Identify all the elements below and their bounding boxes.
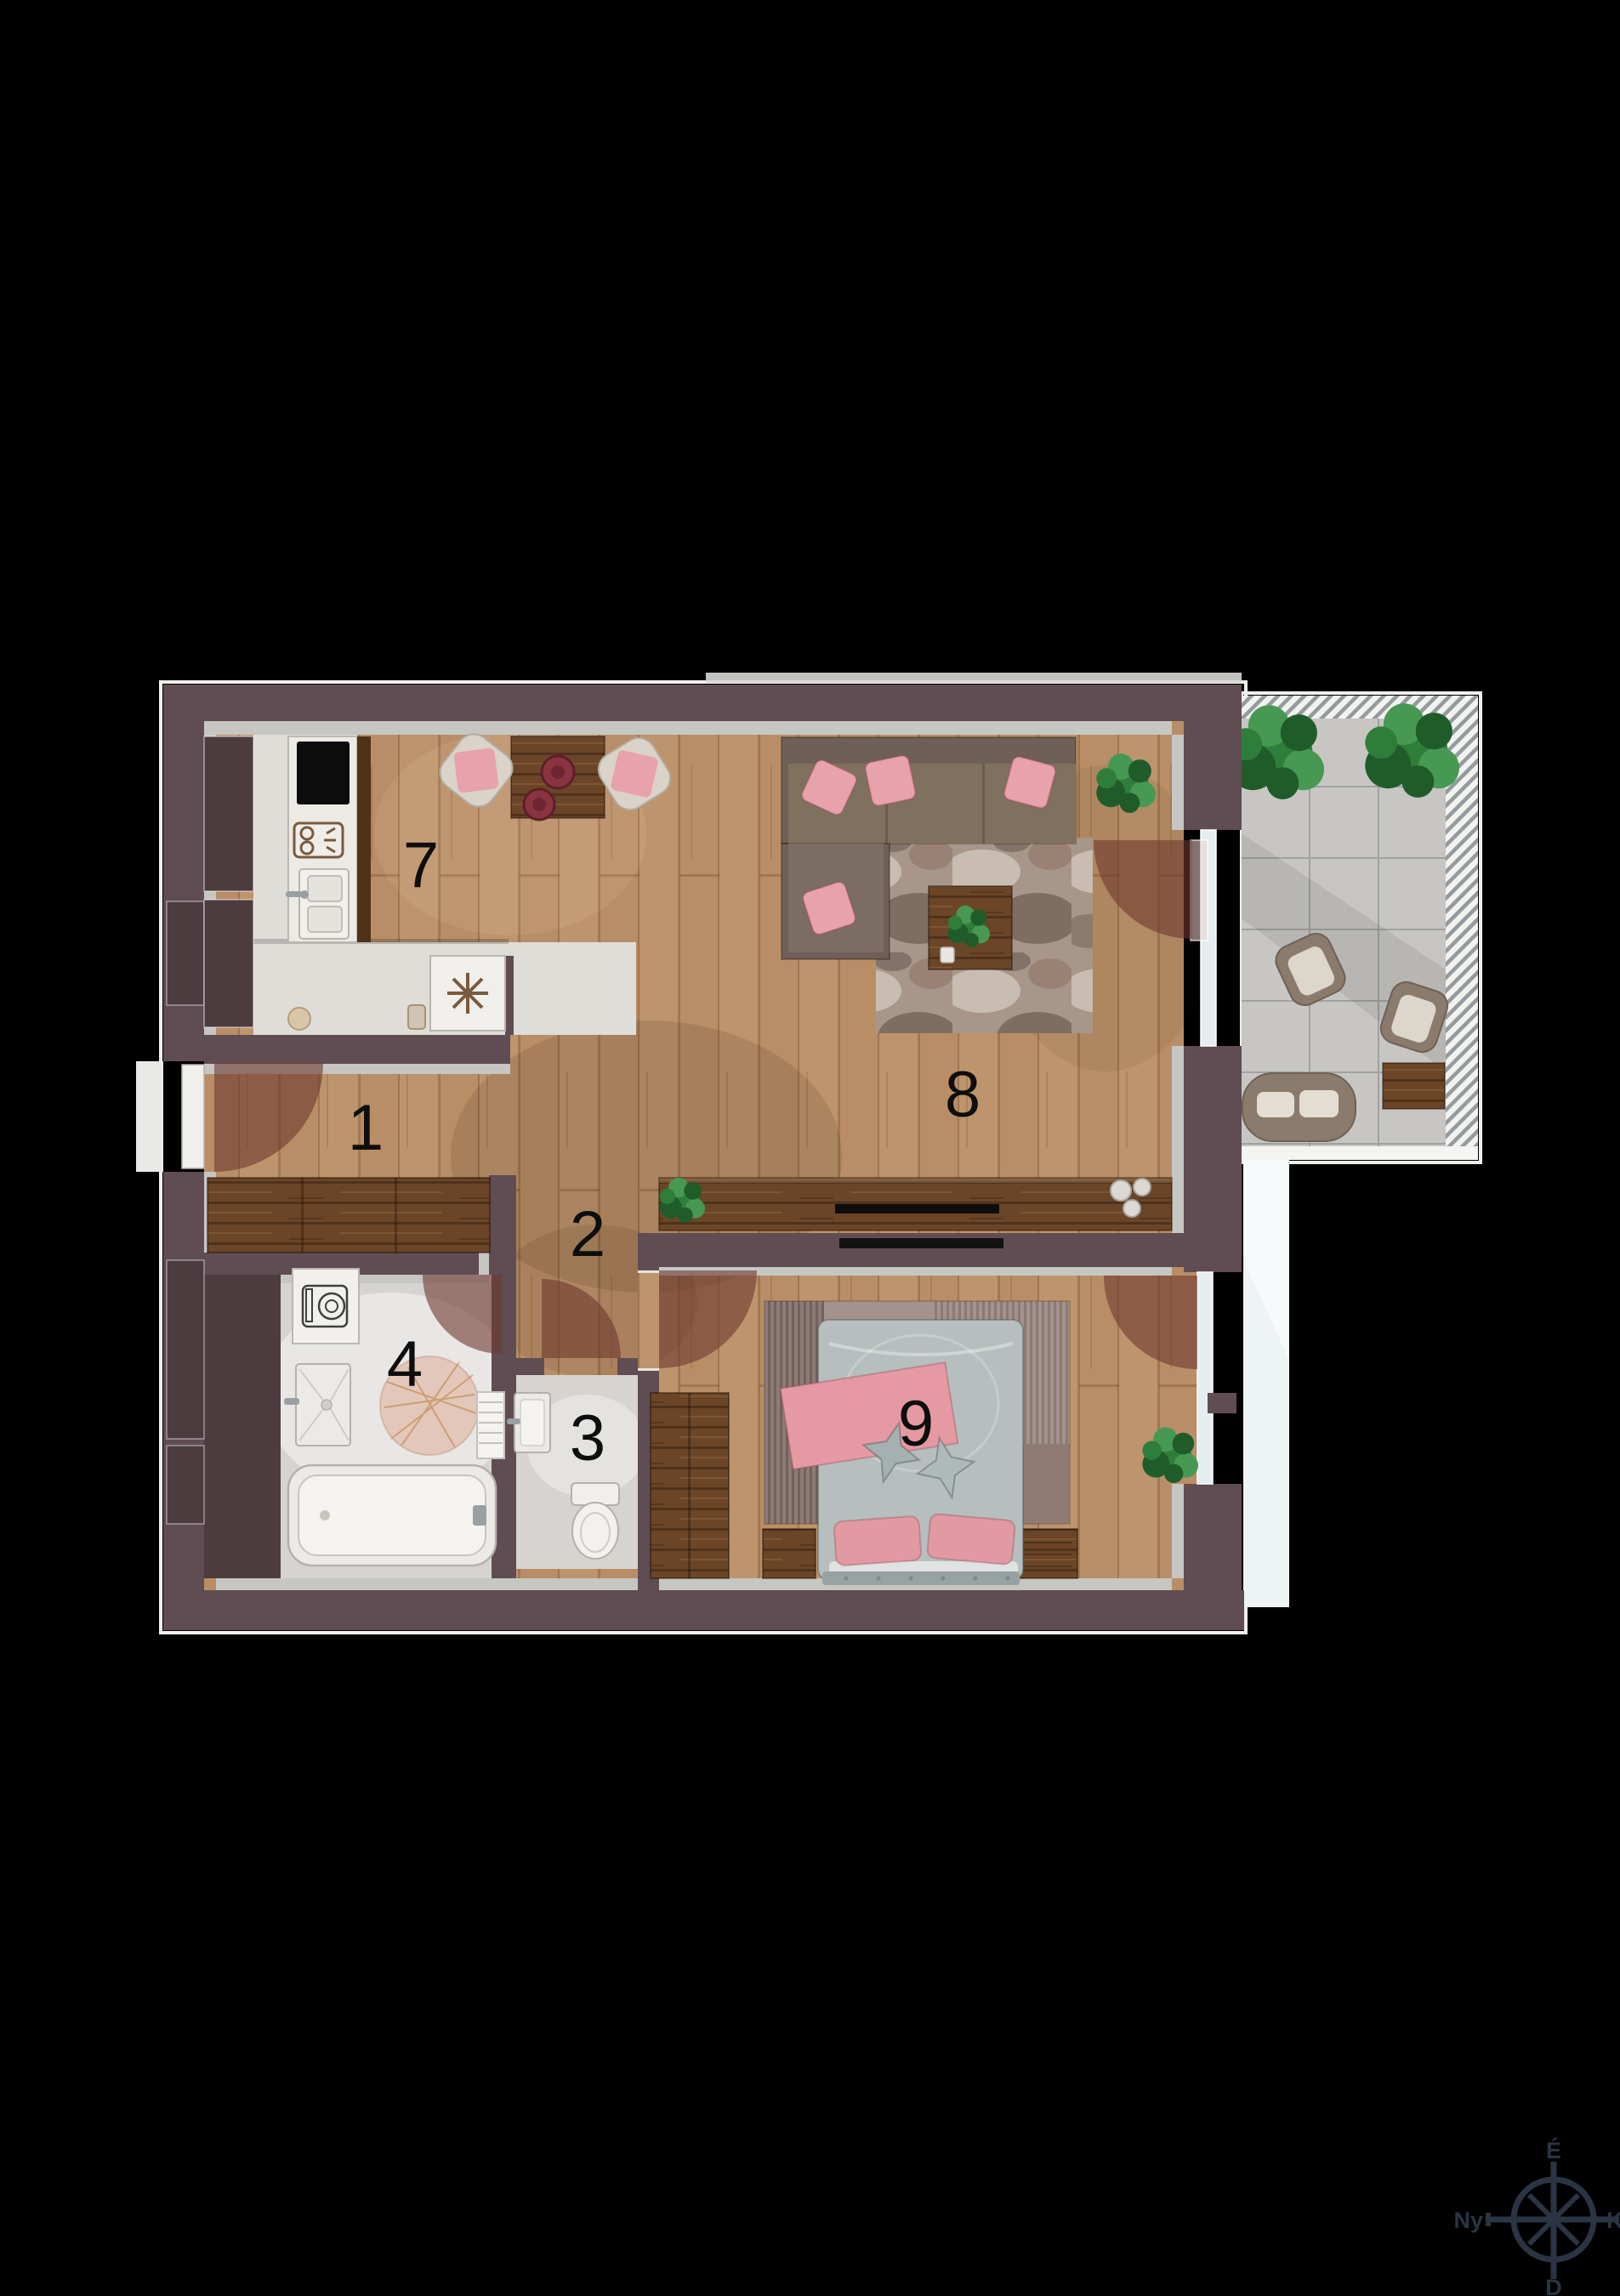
wall-bedroom-left-upper (638, 1233, 659, 1273)
tv-living (835, 1204, 999, 1213)
balcony-door-leaf (1191, 840, 1208, 941)
bathtub (288, 1465, 496, 1566)
faucet (507, 1418, 520, 1424)
balcony-bottom-edge (1242, 1146, 1478, 1160)
kitchen-tall-unit-1 (204, 736, 253, 891)
balcony-side-table (1383, 1063, 1445, 1109)
wall-stub-corridor (489, 1175, 516, 1275)
room-label-living: 8 (945, 1059, 981, 1131)
snowflake-icon (447, 973, 488, 1014)
decor-plate (1111, 1180, 1131, 1201)
jar (408, 1005, 425, 1029)
floorplan-page: 1 2 3 4 7 8 9 É K D Ny (0, 0, 1620, 2296)
fridge (430, 956, 505, 1031)
wall-right-top (1184, 685, 1242, 830)
table-figurine (941, 947, 954, 963)
tv-bedroom-wall (839, 1238, 1003, 1248)
compass-east-label: K (1606, 2208, 1620, 2233)
room-label-corridor: 2 (570, 1198, 605, 1270)
bedroom-doorway (638, 1273, 659, 1368)
exterior-ground-right (1243, 1160, 1289, 1607)
compass-north-label: É (1546, 2137, 1561, 2163)
compass-west-label: Ny (1453, 2208, 1483, 2233)
kitchen-tall-unit-2 (204, 900, 253, 1027)
coffee-table (929, 886, 1012, 969)
wall-right-bottom (1184, 1484, 1242, 1590)
faucet (284, 1398, 299, 1405)
sofa-pillow (864, 754, 917, 807)
wall-top (163, 685, 1242, 721)
nightstand-right (1018, 1529, 1077, 1578)
hall-furniture (207, 1178, 490, 1253)
bed-pillow (927, 1514, 1015, 1566)
kettle (288, 1008, 310, 1030)
faucet (286, 891, 303, 897)
exterior-ledge-top (706, 673, 1242, 683)
floorplan-render: 1 2 3 4 7 8 9 É K D Ny (0, 0, 1620, 2296)
wardrobe-bedroom (651, 1393, 729, 1578)
toilet (571, 1483, 619, 1559)
room-label-wc: 3 (570, 1402, 605, 1475)
room-label-hall: 1 (348, 1092, 384, 1164)
wall-kitchen-hall (204, 1035, 510, 1064)
compass-rose: É K D Ny (1453, 2137, 1620, 2296)
wall-panel-2 (167, 1260, 204, 1439)
entrance-door-leaf (182, 1065, 204, 1168)
headboard (822, 1571, 1020, 1585)
nightstand-left (763, 1529, 816, 1578)
compass-south-label: D (1545, 2275, 1562, 2296)
washing-machine (293, 1269, 359, 1344)
wall-wc-top-left (492, 1358, 544, 1375)
hall-wardrobe (207, 1178, 490, 1253)
stove-icon (294, 823, 343, 857)
room-label-kitchen: 7 (403, 829, 439, 901)
tv-sideboard (659, 1178, 1172, 1230)
balcony-loveseat (1242, 1073, 1356, 1141)
cooktop (297, 742, 350, 804)
bedroom-window-glass (1197, 1272, 1213, 1484)
room-label-bedroom: 9 (898, 1388, 934, 1460)
wall-panel-1 (167, 901, 204, 1005)
decor-plate (1123, 1200, 1140, 1217)
towel-radiator (477, 1392, 504, 1458)
bedroom-window-mullion (1208, 1393, 1236, 1413)
wall-bottom (163, 1590, 1244, 1630)
dining-plate-1 (542, 756, 574, 788)
tub-faucet (473, 1505, 486, 1526)
entrance-landing (136, 1061, 163, 1172)
wall-panel-3 (167, 1446, 204, 1524)
balcony (1230, 696, 1478, 1160)
bed-pillow (833, 1516, 921, 1566)
wall-bathroom-shaft (204, 1275, 281, 1578)
decor-plate (1134, 1179, 1151, 1196)
wall-wc-top-right (617, 1358, 638, 1375)
dining-plate-2 (524, 789, 554, 820)
room-label-bathroom: 4 (387, 1328, 423, 1401)
